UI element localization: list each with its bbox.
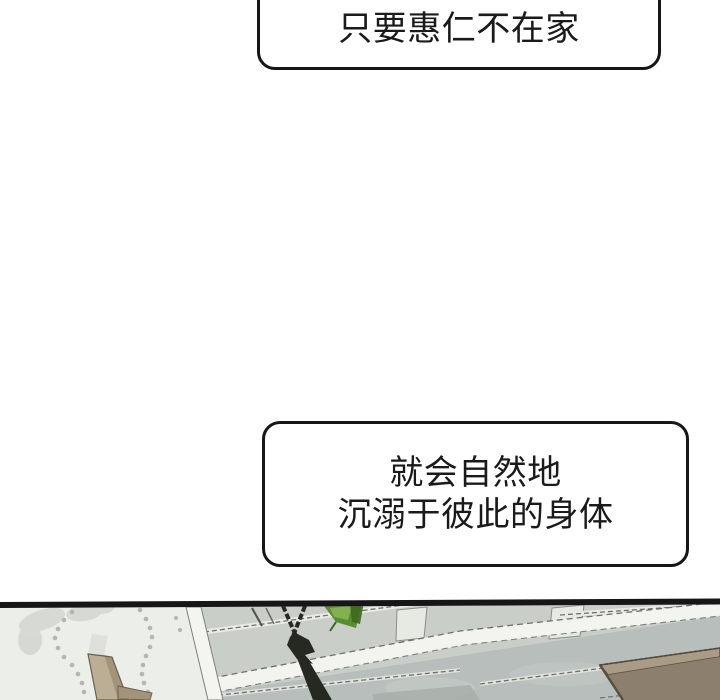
speech-bubble-top: 只要惠仁不在家 (257, 0, 661, 70)
frame-post (396, 607, 427, 641)
speech-text-middle-line2: 沉溺于彼此的身体 (338, 494, 614, 536)
speech-text-top: 只要惠仁不在家 (260, 9, 658, 49)
speech-bubble-middle: 就会自然地 沉溺于彼此的身体 (262, 421, 689, 567)
comic-panel (0, 598, 720, 700)
panel-illustration (0, 598, 720, 700)
speech-text-middle-line1: 就会自然地 (389, 452, 562, 494)
webtoon-page: 只要惠仁不在家 就会自然地 沉溺于彼此的身体 (0, 0, 720, 700)
